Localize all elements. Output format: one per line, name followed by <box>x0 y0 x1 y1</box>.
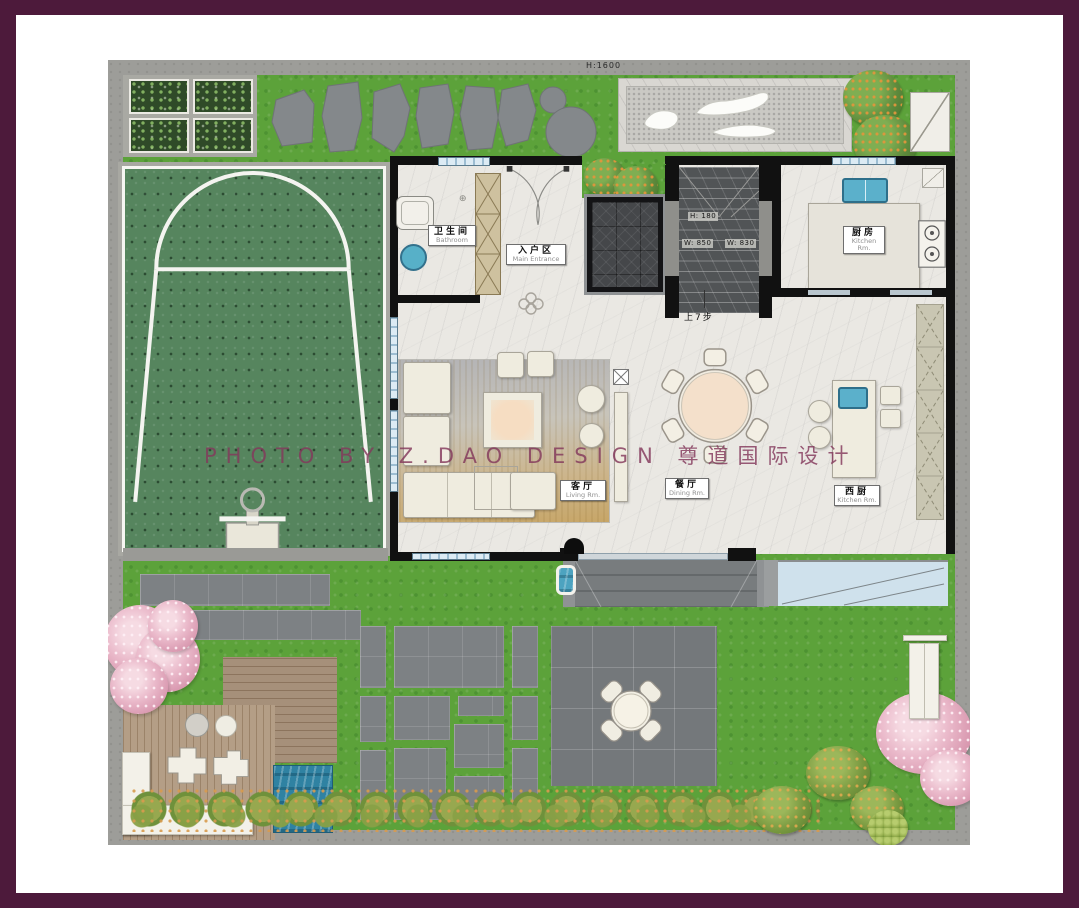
ottoman <box>497 352 524 378</box>
wall-pier <box>665 165 679 201</box>
stepping-stones <box>270 78 608 158</box>
bathtub-inner <box>401 201 429 225</box>
bar-stool <box>880 386 901 405</box>
living-label-en: Living Rm. <box>563 492 603 499</box>
deck-chairs <box>210 747 250 789</box>
bench-seam <box>924 644 925 720</box>
paver-tile <box>394 696 450 740</box>
landscape-floor-plan: H:1600 <box>0 0 1079 908</box>
stair-height-label: H: 180 <box>688 212 718 221</box>
paver-tile <box>512 696 538 740</box>
stair-note-leader <box>704 290 705 308</box>
watermark: PHOTO BY Z.DAO DESIGN 尊道国际设计 <box>204 440 857 470</box>
wall <box>505 552 567 561</box>
equipment-pad <box>910 92 950 152</box>
corner-shelf <box>922 168 944 188</box>
round-stool <box>808 400 831 423</box>
garden-bench-back <box>903 635 947 641</box>
window <box>412 553 490 560</box>
flower-hedge <box>130 786 820 832</box>
wall-pier <box>759 165 772 201</box>
door-threshold <box>808 290 850 295</box>
stair-rail <box>759 201 772 276</box>
armchair <box>403 362 451 414</box>
cherry-tree <box>148 600 198 652</box>
living-label: 客厅 Living Rm. <box>560 480 606 501</box>
tall-cabinets <box>916 304 944 520</box>
entry-cabinet <box>475 173 501 295</box>
canopy-curb <box>764 560 778 606</box>
basketball-hoop-icon <box>241 489 263 511</box>
window <box>438 157 490 166</box>
path-band <box>123 548 388 561</box>
deck-chairs <box>166 745 208 787</box>
wall <box>772 165 781 290</box>
paver-tile <box>360 696 386 742</box>
court-lines <box>125 169 383 549</box>
coffee-table-top <box>491 400 534 440</box>
bathroom-label: 卫生间 Bathroom <box>428 225 476 246</box>
west-kitchen-label: 西厨 Kitchen Rm. <box>834 485 880 506</box>
garden-bench <box>909 643 939 719</box>
plant-sketch-icon <box>516 288 546 318</box>
stove <box>918 220 946 268</box>
basketball-court <box>122 166 386 552</box>
patio-table-set <box>596 676 666 746</box>
wall-column <box>564 538 584 554</box>
floor-drain-icon: ⊕ <box>459 194 467 204</box>
zen-rocks <box>626 86 844 144</box>
bathroom-sink <box>400 244 427 271</box>
window <box>390 317 398 399</box>
planting-bed <box>193 118 253 153</box>
paver-tile <box>454 724 504 768</box>
water-basin <box>556 565 576 595</box>
door-threshold <box>890 290 932 295</box>
paver-tile <box>394 626 504 688</box>
ottoman <box>527 351 554 377</box>
entry-steps <box>575 560 757 607</box>
shrub <box>868 810 908 845</box>
paver-tile <box>512 626 538 688</box>
bar-stool <box>880 409 901 428</box>
stair-width-right-label: W: 830 <box>725 239 756 248</box>
wall <box>946 156 955 554</box>
sliding-door <box>578 553 728 560</box>
window <box>832 157 896 165</box>
wall <box>665 156 777 165</box>
hoop-post <box>226 523 278 549</box>
entry-porch <box>587 197 663 292</box>
cherry-tree <box>110 658 168 714</box>
wall <box>390 295 480 303</box>
wall-pier <box>728 548 756 561</box>
west-kitchen-label-en: Kitchen Rm. <box>837 497 877 504</box>
stair-note: 上7步 <box>684 310 714 323</box>
kitchen-label: 厨房 Kitchen Rm. <box>843 226 885 254</box>
island-sink <box>838 387 868 409</box>
side-table <box>577 385 605 413</box>
wall-pier <box>759 276 772 318</box>
kitchen-sink <box>842 178 888 203</box>
kitchen-label-en: Kitchen Rm. <box>846 238 882 252</box>
speaker-box <box>613 369 629 385</box>
glass-canopy <box>778 560 948 606</box>
paver-tile <box>360 626 386 688</box>
planting-bed <box>129 118 189 153</box>
bathroom-label-en: Bathroom <box>431 237 473 244</box>
round-table <box>185 713 209 737</box>
paver-band <box>175 610 361 640</box>
chaise <box>510 472 556 510</box>
dining-label-en: Dining Rm. <box>668 490 706 497</box>
entrance-label-en: Main Entrance <box>509 256 563 263</box>
fence-height-label: H:1600 <box>586 61 621 70</box>
planting-bed <box>193 79 253 114</box>
planting-bed <box>129 79 189 114</box>
entrance-label: 入户区 Main Entrance <box>506 244 566 265</box>
stair-rail <box>665 201 679 276</box>
wall-pier <box>665 276 679 318</box>
round-table <box>215 715 237 737</box>
shrub <box>753 786 811 834</box>
paver-tile <box>458 696 504 716</box>
stair-width-left-label: W: 850 <box>682 239 713 248</box>
dining-label: 餐厅 Dining Rm. <box>665 478 709 499</box>
entry-door-swing <box>505 166 571 238</box>
sink-divider <box>865 180 866 201</box>
